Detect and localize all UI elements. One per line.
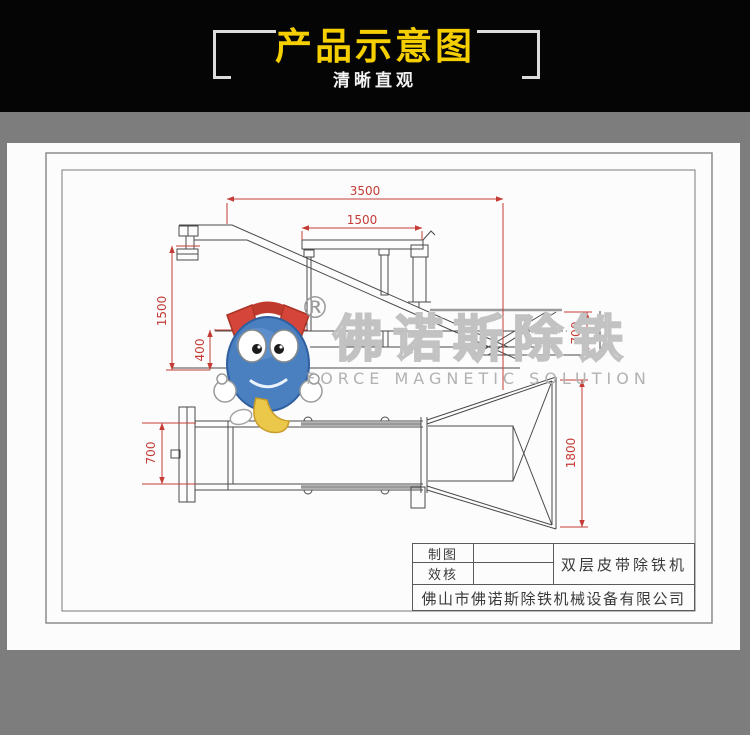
registered-trademark-icon: ® bbox=[300, 294, 330, 324]
dim-magnet-length-label: 1500 bbox=[347, 213, 378, 227]
title-block: 制图 双层皮带除铁机 效核 佛山市佛诺斯除铁机械设备有限公司 bbox=[412, 543, 695, 611]
dim-left-height-label: 1500 bbox=[155, 296, 169, 327]
dim-conveyor-width-label: 700 bbox=[144, 442, 158, 465]
checker-label: 效核 bbox=[413, 563, 474, 584]
company-name: 佛山市佛诺斯除铁机械设备有限公司 bbox=[413, 584, 694, 611]
dim-layer-gap-label: 400 bbox=[193, 339, 207, 362]
product-schematic-page: 产品示意图 清晰直观 bbox=[0, 0, 750, 735]
product-name: 双层皮带除铁机 bbox=[554, 544, 694, 584]
checker-value bbox=[474, 563, 554, 584]
drafter-label: 制图 bbox=[413, 544, 474, 563]
drafter-value bbox=[474, 544, 554, 563]
dim-hopper-width-label: 1800 bbox=[564, 438, 578, 469]
watermark-brand-cn: 佛诺斯除铁 bbox=[333, 314, 633, 364]
dim-total-length-label: 3500 bbox=[350, 184, 381, 198]
watermark-brand-en: FORCE MAGNETIC SOLUTION bbox=[306, 371, 651, 387]
